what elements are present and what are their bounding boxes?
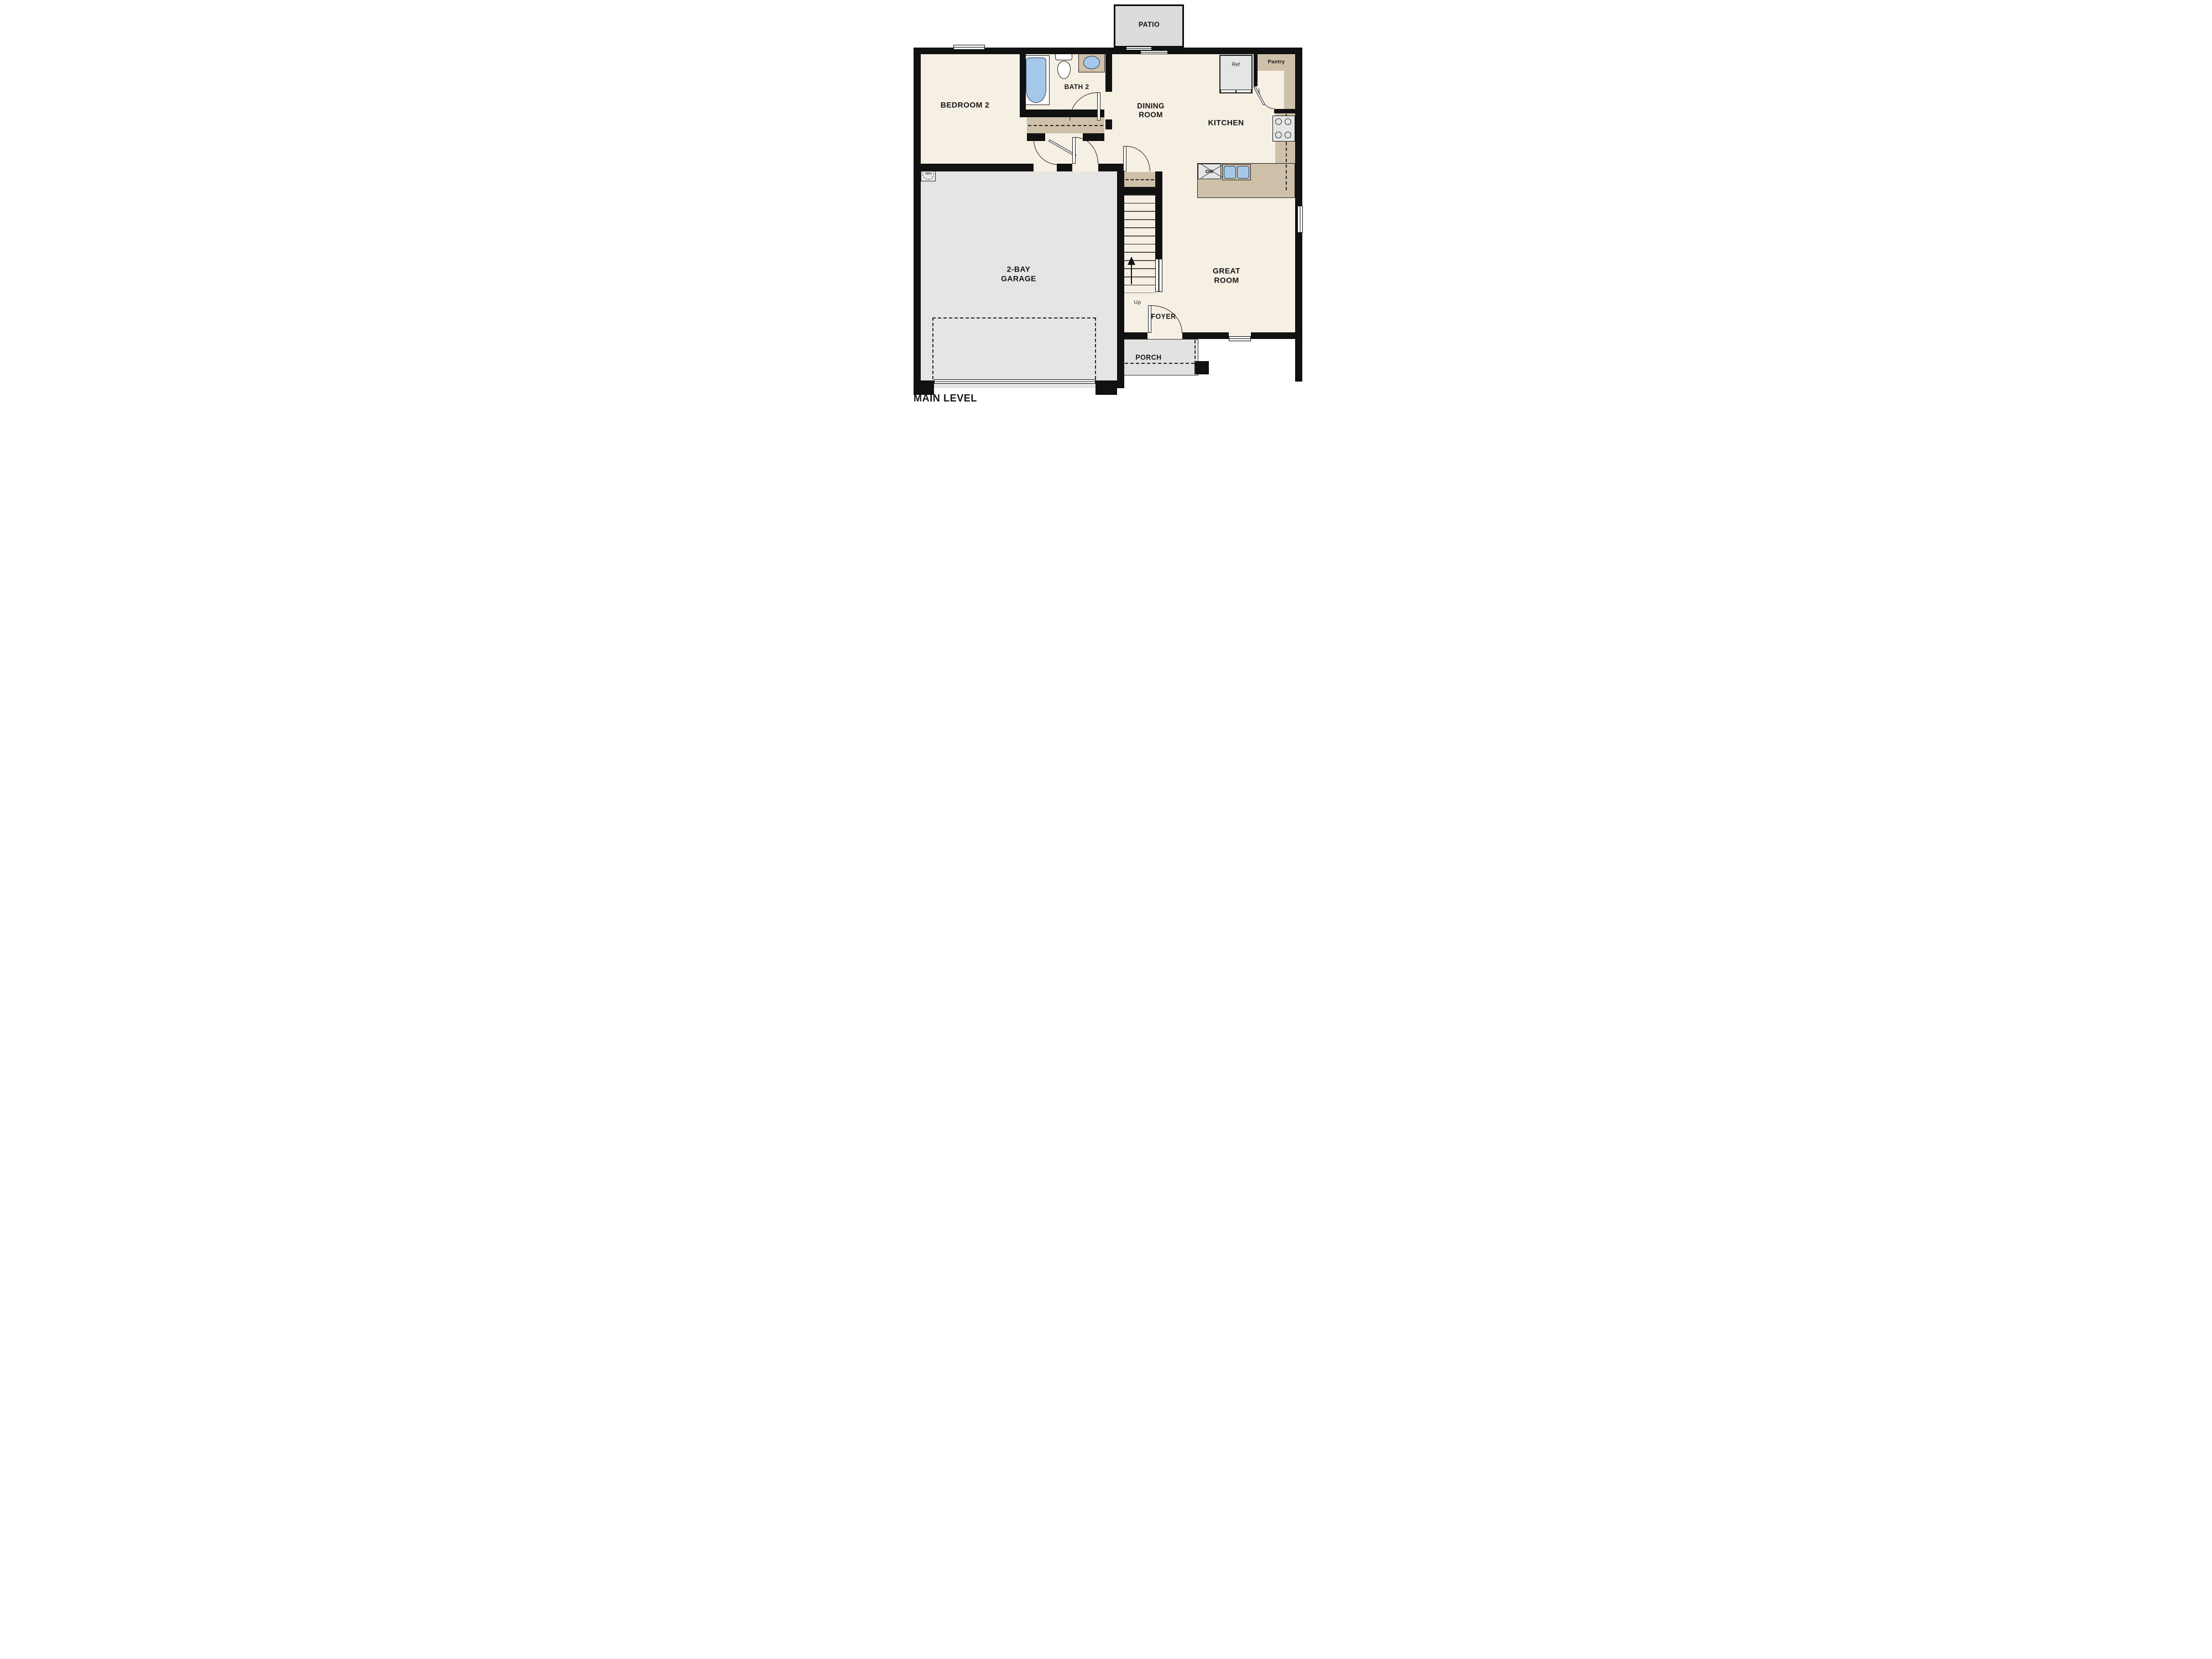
hall-door-leaf [1123, 146, 1126, 171]
wall-bath-left [1020, 54, 1026, 109]
wall-bath-right-1 [1105, 54, 1112, 92]
patio-label: PATIO [1139, 21, 1160, 29]
great-room-label-line1: GREAT [1213, 266, 1240, 275]
bath2-label: BATH 2 [1065, 83, 1089, 91]
wall-pantry-stub [1254, 54, 1258, 86]
dining-room-label: DINING ROOM [1137, 102, 1165, 119]
garage-door-dashed-area [932, 317, 1096, 379]
refrigerator [1219, 55, 1253, 93]
bath-door-leaf [1097, 92, 1100, 121]
pantry-shelf-right [1284, 71, 1295, 109]
refrigerator-label: Ref [1232, 62, 1240, 68]
patio-slider-panel-1 [1126, 46, 1152, 50]
kitchen-sink-basin-right [1237, 166, 1249, 179]
stairs-arrow-shaft [1131, 264, 1132, 284]
wall-divider-3 [1098, 164, 1124, 171]
bedroom-window [953, 45, 985, 50]
stair-closet-dashed [1125, 179, 1154, 180]
pantry-label: Pantry [1268, 59, 1285, 65]
great-room-side-window [1297, 206, 1303, 233]
wall-closet-bottom-1 [1027, 133, 1045, 141]
garage-door [934, 379, 1095, 384]
kitchen-label: KITCHEN [1208, 118, 1244, 128]
burner-4 [1285, 132, 1291, 138]
garage-label: 2-BAY GARAGE [1001, 264, 1036, 283]
toilet-tank [1055, 54, 1072, 60]
wall-south-2 [1182, 332, 1229, 339]
patio-slider-panel-2 [1140, 50, 1168, 54]
stairs-arrow-head [1128, 257, 1135, 265]
garage-door-leaf [1072, 137, 1076, 164]
burner-3 [1275, 132, 1282, 138]
water-heater-label: WH [925, 172, 932, 176]
plan-title: MAIN LEVEL [914, 393, 977, 404]
wall-pantry-bottom [1274, 109, 1295, 113]
great-room-label-line2: ROOM [1213, 275, 1240, 285]
bathtub [1026, 58, 1046, 103]
wall-bath-bottom [1020, 109, 1104, 117]
great-room-label: GREAT ROOM [1213, 266, 1240, 284]
wall-closet-bottom-2 [1083, 133, 1104, 141]
wall-divider-1 [914, 164, 1034, 171]
wall-stair-right [1155, 171, 1162, 259]
wall-divider-2 [1057, 164, 1072, 171]
refrigerator-doors [1220, 90, 1251, 93]
dining-room-label-line2: ROOM [1137, 111, 1165, 119]
wall-stair-left [1117, 171, 1124, 388]
stairs [1124, 195, 1155, 293]
floor-plan: PATIO BEDROOM 2 BATH 2 DINING ROOM KITCH… [830, 0, 1383, 415]
bedroom2-label: BEDROOM 2 [941, 101, 989, 110]
foyer-label: FOYER [1151, 313, 1176, 321]
garage-label-line2: GARAGE [1001, 274, 1036, 283]
wall-left [914, 48, 921, 388]
wall-south-3 [1251, 332, 1302, 339]
dining-room-label-line1: DINING [1137, 102, 1165, 111]
wall-bath-right-2 [1105, 119, 1112, 129]
great-room-south-window [1229, 336, 1251, 341]
burner-1 [1275, 118, 1282, 125]
porch-dashed-divider [1194, 340, 1196, 374]
garage-label-line1: 2-BAY [1001, 264, 1036, 274]
porch-dashed-line [1119, 363, 1194, 364]
up-label: Up [1134, 299, 1141, 305]
porch-post [1194, 361, 1209, 374]
kitchen-sink-basin-left [1224, 166, 1236, 179]
porch-label: PORCH [1135, 354, 1161, 362]
bath-sink [1083, 56, 1100, 69]
dishwasher-label: DW [1206, 169, 1213, 174]
stair-doorway [1155, 259, 1162, 292]
wall-garage-corner-right [1095, 380, 1117, 395]
burner-2 [1285, 118, 1291, 125]
linen-closet-dashed [1028, 125, 1103, 126]
wall-stair-closet [1124, 187, 1155, 195]
